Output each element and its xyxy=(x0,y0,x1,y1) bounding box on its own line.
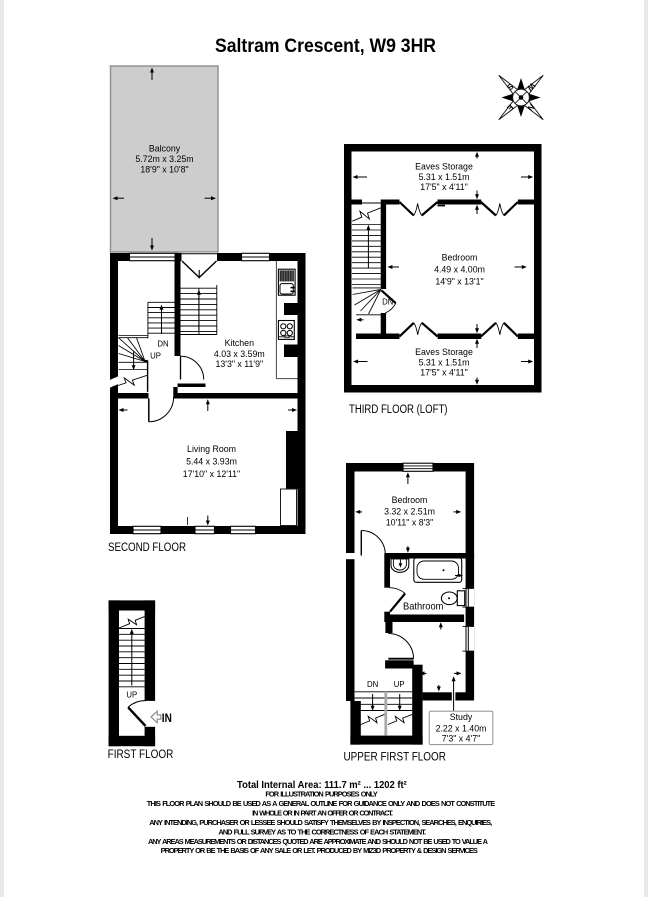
svg-text:DN: DN xyxy=(382,298,393,307)
svg-text:4.03 x 3.59m: 4.03 x 3.59m xyxy=(214,349,265,359)
svg-text:UP: UP xyxy=(150,351,161,360)
svg-text:PROPERTY OR BE THE BASIS OF AN: PROPERTY OR BE THE BASIS OF ANY SALE OR … xyxy=(161,846,478,855)
svg-text:Kitchen: Kitchen xyxy=(225,338,254,348)
svg-text:AND FULL SURVEY AS TO THE CORR: AND FULL SURVEY AS TO THE CORRECTNESS OF… xyxy=(218,827,426,836)
svg-text:5.31 x 1.51m: 5.31 x 1.51m xyxy=(419,358,470,368)
svg-text:IN: IN xyxy=(162,711,172,725)
svg-text:17'5" x 4'11": 17'5" x 4'11" xyxy=(420,182,468,192)
svg-text:ANY INTENDING, PURCHASER OR LE: ANY INTENDING, PURCHASER OR LESSEE SHOUL… xyxy=(149,818,492,827)
svg-text:10'11" x 8'3": 10'11" x 8'3" xyxy=(386,518,434,528)
svg-text:Saltram Crescent, W9 3HR: Saltram Crescent, W9 3HR xyxy=(215,36,436,57)
svg-text:Bathroom: Bathroom xyxy=(403,601,443,612)
svg-text:Eaves Storage: Eaves Storage xyxy=(415,162,473,172)
svg-text:SECOND FLOOR: SECOND FLOOR xyxy=(108,540,186,554)
svg-text:5.72m x 3.25m: 5.72m x 3.25m xyxy=(135,154,193,164)
svg-text:IN WHOLE OR IN PART AN OFFER O: IN WHOLE OR IN PART AN OFFER OR CONTRACT… xyxy=(252,809,393,818)
svg-text:UPPER FIRST FLOOR: UPPER FIRST FLOOR xyxy=(344,750,447,764)
svg-text:Bedroom: Bedroom xyxy=(392,495,428,505)
svg-text:17'10" x 12'11": 17'10" x 12'11" xyxy=(183,469,240,479)
svg-text:ANY AREAS MEASUREMENTS OR DIST: ANY AREAS MEASUREMENTS OR DISTANCES QUOT… xyxy=(148,837,489,846)
svg-text:UP: UP xyxy=(126,691,137,700)
svg-text:14'9" x 13'1": 14'9" x 13'1" xyxy=(435,277,483,287)
svg-text:3.32 x 2.51m: 3.32 x 2.51m xyxy=(384,507,435,517)
svg-text:5.44 x 3.93m: 5.44 x 3.93m xyxy=(186,457,237,467)
svg-text:13'3" x 11'9": 13'3" x 11'9" xyxy=(216,359,264,369)
svg-text:Living Room: Living Room xyxy=(187,444,236,454)
svg-text:UP: UP xyxy=(394,680,405,689)
svg-text:Eaves Storage: Eaves Storage xyxy=(415,347,473,357)
svg-text:18'9" x 10'8": 18'9" x 10'8" xyxy=(140,165,188,175)
svg-text:7'3" x 4'7": 7'3" x 4'7" xyxy=(442,734,480,744)
svg-text:DN: DN xyxy=(157,340,168,349)
svg-text:4.49 x 4.00m: 4.49 x 4.00m xyxy=(434,265,485,275)
svg-text:Balcony: Balcony xyxy=(149,143,181,153)
svg-text:Bedroom: Bedroom xyxy=(442,253,478,263)
svg-text:DN: DN xyxy=(367,680,378,689)
svg-text:2.22 x 1.40m: 2.22 x 1.40m xyxy=(436,723,487,733)
svg-text:FOR ILLUSTRATION PURPOSES ONLY: FOR ILLUSTRATION PURPOSES ONLY xyxy=(265,790,378,799)
svg-text:5.31 x 1.51m: 5.31 x 1.51m xyxy=(419,172,470,182)
svg-text:THIS FLOOR PLAN SHOULD BE USED: THIS FLOOR PLAN SHOULD BE USED AS A GENE… xyxy=(147,799,495,808)
svg-text:THIRD FLOOR (LOFT): THIRD FLOOR (LOFT) xyxy=(349,402,448,416)
svg-text:17'5" x 4'11": 17'5" x 4'11" xyxy=(420,368,468,378)
svg-text:Study: Study xyxy=(450,712,473,722)
svg-text:FIRST FLOOR: FIRST FLOOR xyxy=(108,747,174,761)
